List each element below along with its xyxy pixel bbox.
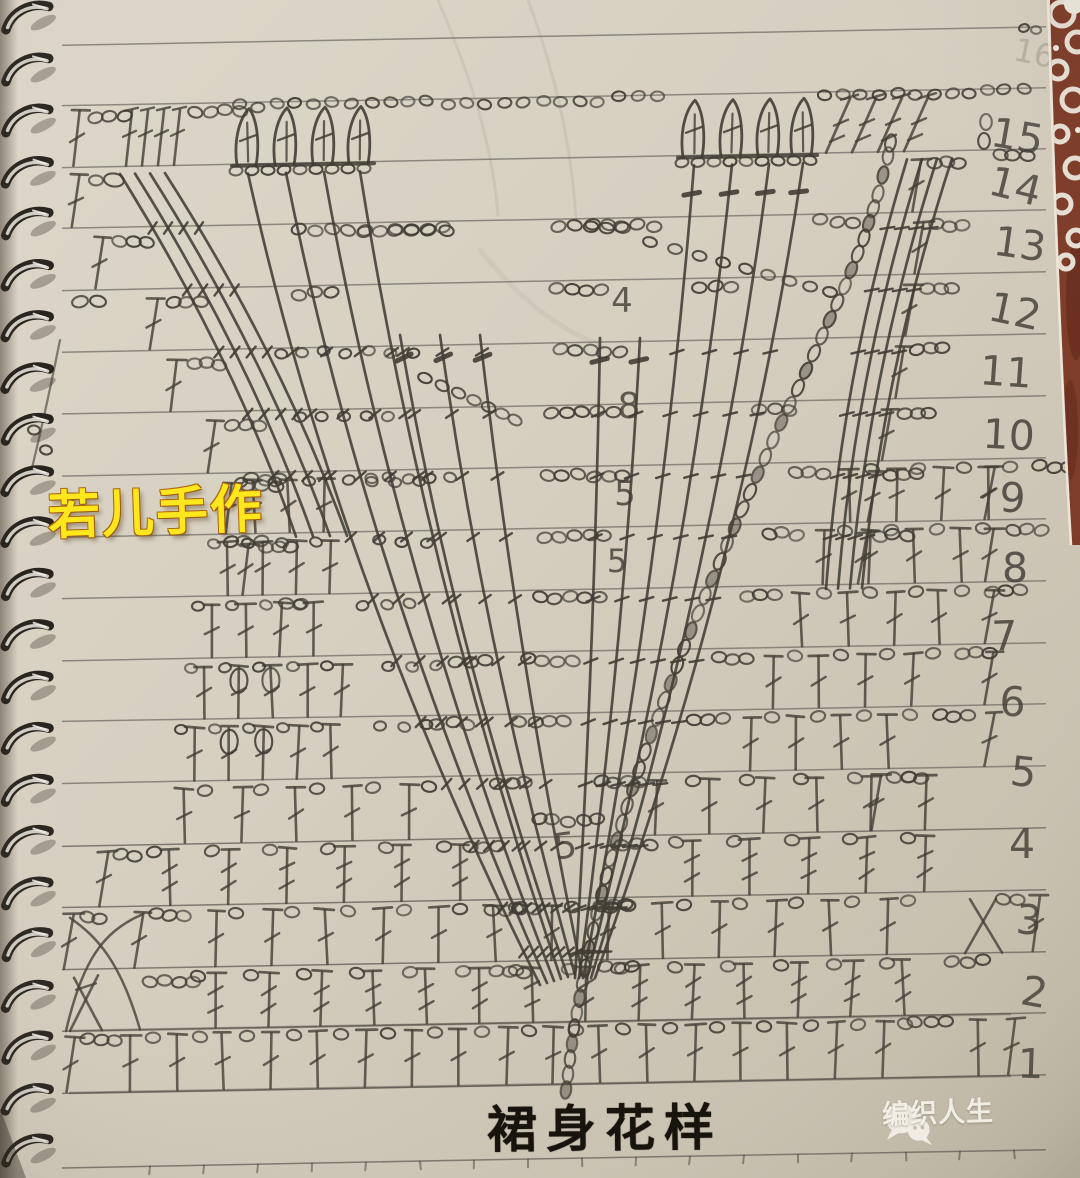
brand-logo-text: 编织人生 [882, 1098, 995, 1129]
pattern-title: 裙身花样 [487, 1101, 724, 1158]
notebook-photo: 1514131211109876543211648555 [0, 0, 1080, 1178]
photo-vignette [0, 0, 1080, 1178]
watermark-text: 若儿手作 [47, 482, 279, 545]
notebook-page-svg: 1514131211109876543211648555 [0, 0, 1080, 1178]
brand-logo: 编织人生 [882, 1098, 995, 1129]
